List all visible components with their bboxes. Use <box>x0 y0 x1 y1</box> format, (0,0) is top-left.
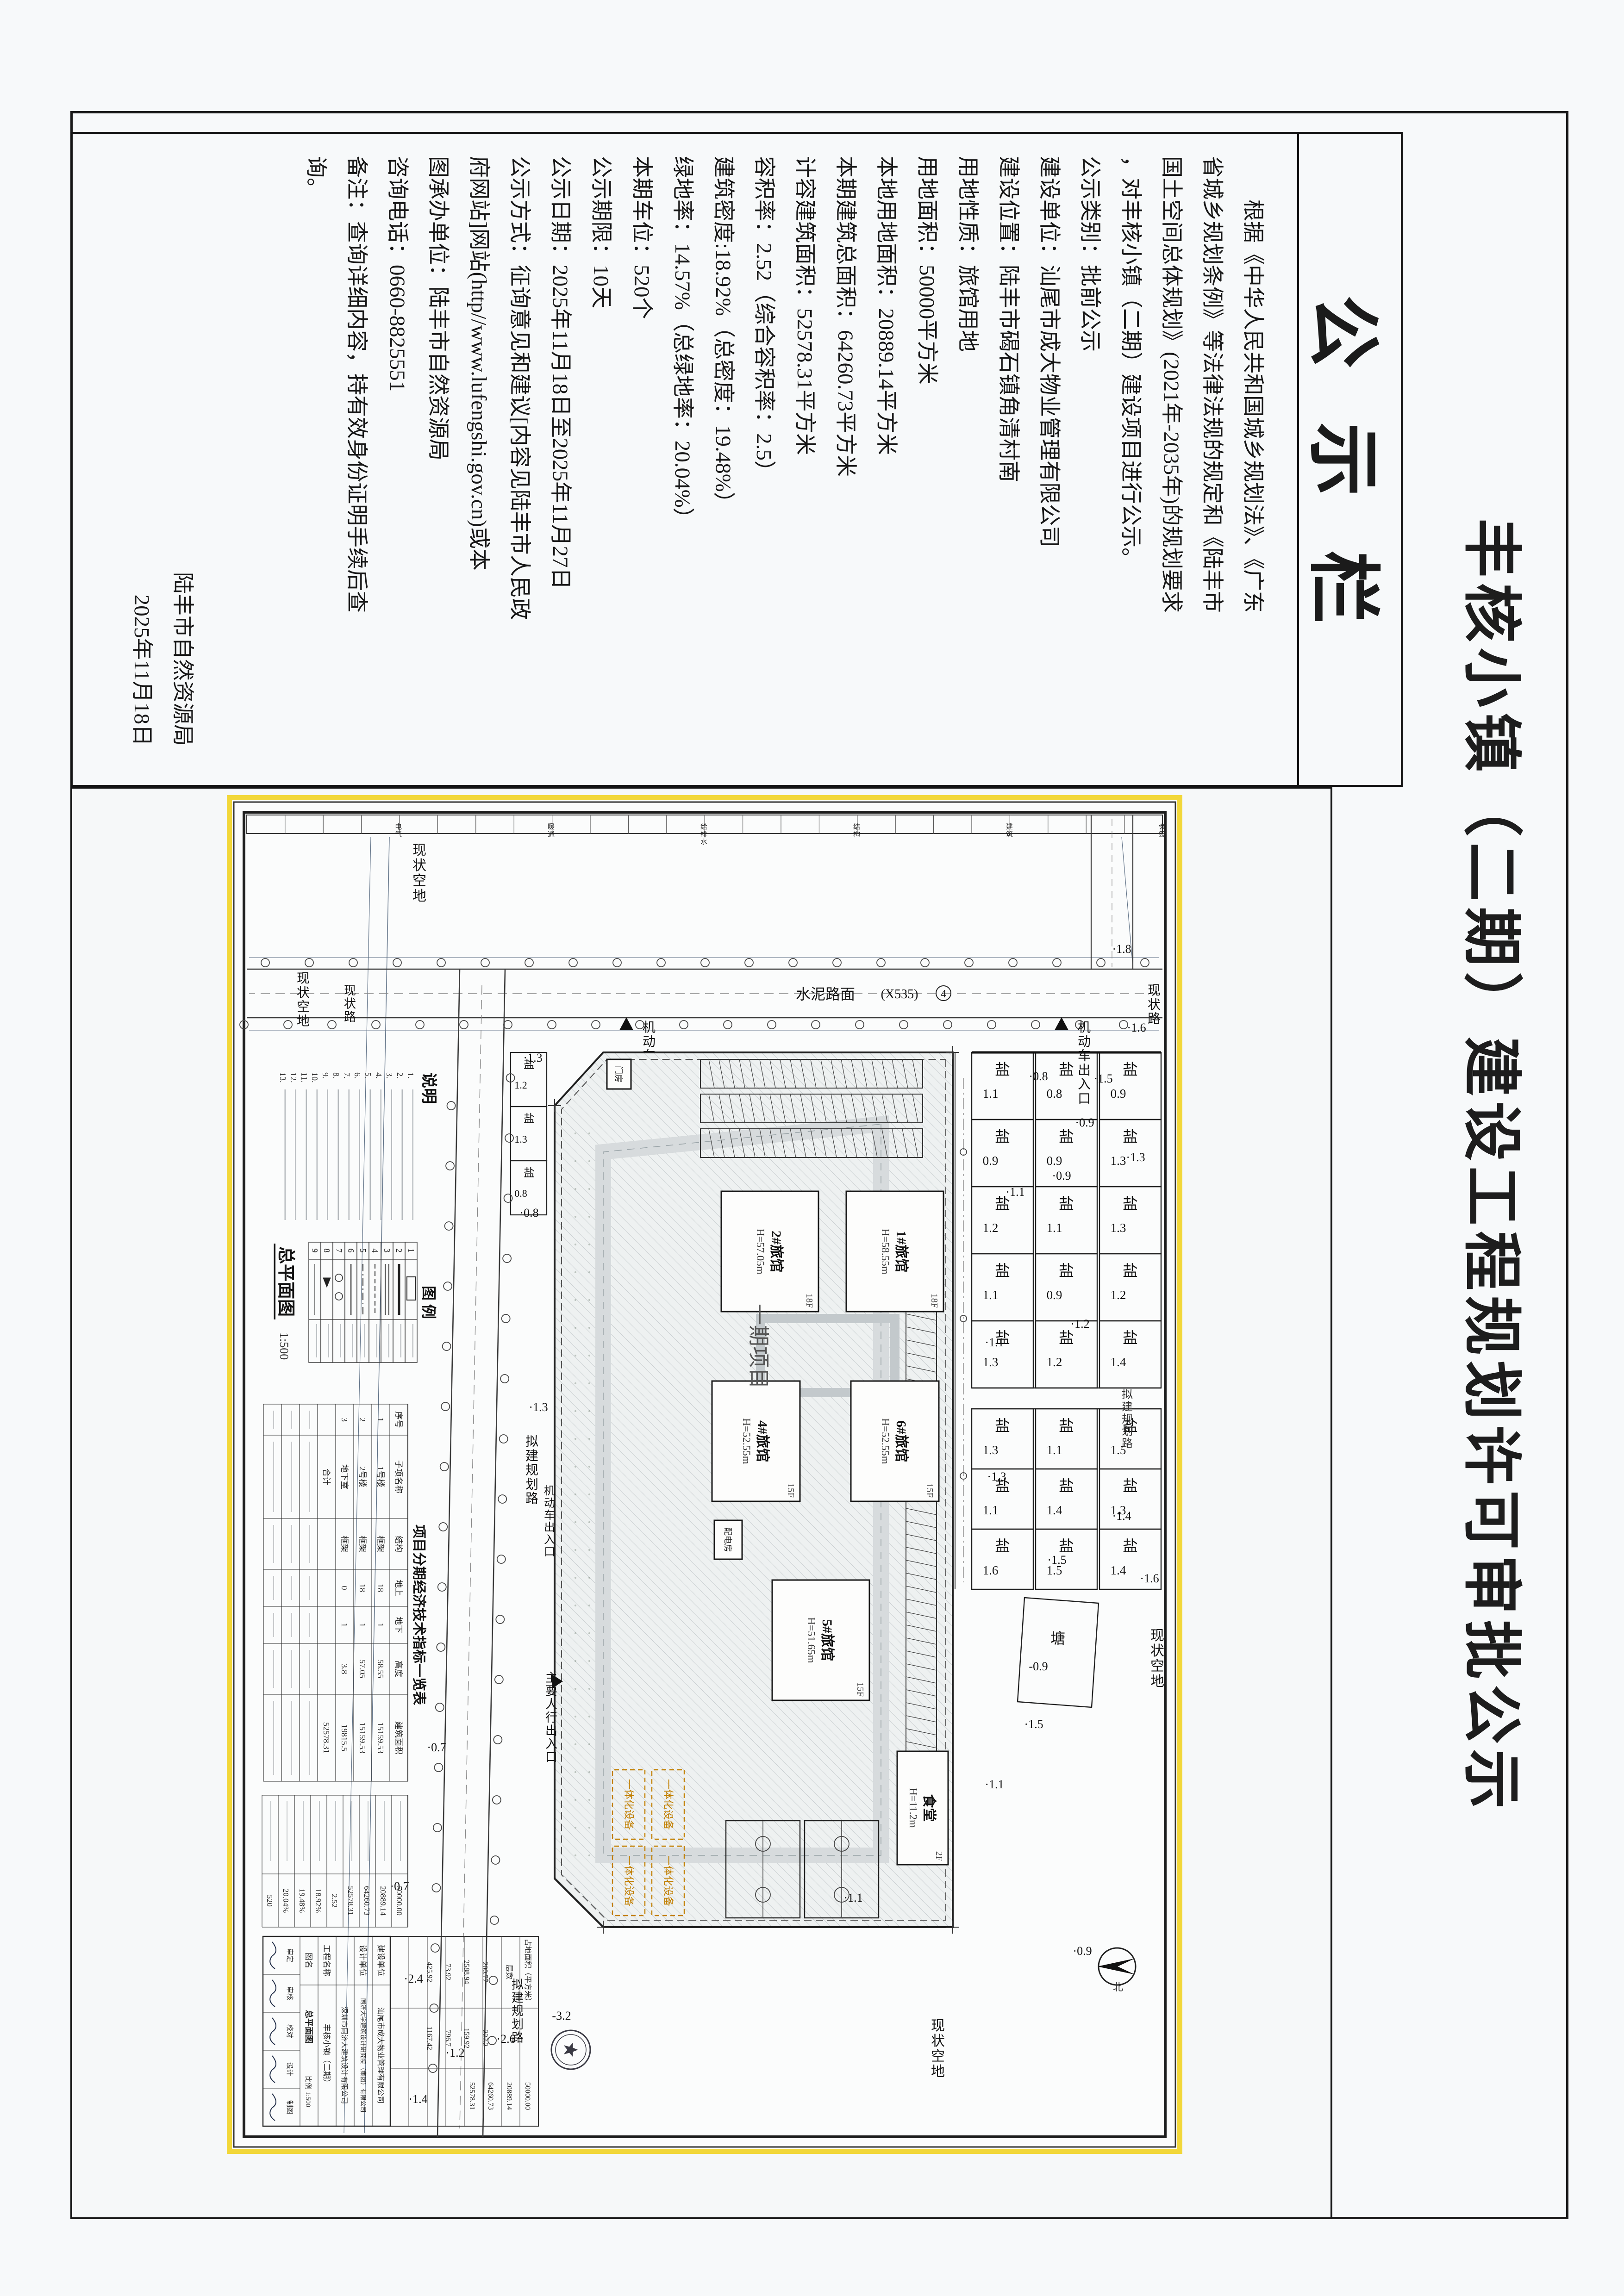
svg-text:盐: 盐 <box>1059 1478 1074 1495</box>
svg-text:1: 1 <box>340 1623 349 1627</box>
svg-text:0: 0 <box>340 1586 349 1590</box>
svg-text:一体化设备: 一体化设备 <box>662 1779 674 1830</box>
notice-line: 用地面积：50000平方米 <box>906 156 947 765</box>
svg-text:796.7: 796.7 <box>444 2030 452 2047</box>
notice-line: 公示方式：征询意见和建议[内容见陆丰市人民政 <box>499 156 540 765</box>
notice-line: 容积率：2.52（综合容积率：2.5） <box>743 156 784 765</box>
svg-text:深圳市同济人建筑设计有限公司: 深圳市同济人建筑设计有限公司 <box>340 2007 348 2104</box>
notice-line: 计容建筑面积：52578.31平方米 <box>784 156 825 765</box>
svg-text:1.: 1. <box>406 1072 415 1079</box>
svg-text:框架: 框架 <box>358 1536 367 1552</box>
svg-text:层数: 层数 <box>505 1965 513 1979</box>
svg-text:一体化设备: 一体化设备 <box>623 1855 635 1906</box>
svg-text:1号楼: 1号楼 <box>376 1467 385 1487</box>
svg-text:1.1: 1.1 <box>1047 1443 1062 1457</box>
svg-text:盐: 盐 <box>1059 1128 1074 1145</box>
svg-text:6#旅馆: 6#旅馆 <box>893 1420 909 1462</box>
svg-text:现状空地: 现状空地 <box>1150 1628 1164 1689</box>
svg-text:·1.3: ·1.3 <box>529 1400 548 1414</box>
svg-text:15F: 15F <box>786 1483 796 1498</box>
svg-text:现状路: 现状路 <box>344 984 356 1024</box>
svg-text:配电房: 配电房 <box>723 1527 732 1552</box>
svg-text:4#旅馆: 4#旅馆 <box>755 1420 770 1462</box>
notice-body: 根据《中华人民共和国城乡规划法》、《广东省城乡规划条例》等法律法规的规定和《陆丰… <box>121 134 1297 785</box>
svg-text:19.48%: 19.48% <box>298 1889 306 1913</box>
svg-text:18: 18 <box>358 1584 367 1592</box>
svg-text:58.55: 58.55 <box>376 1660 385 1679</box>
svg-text:1.1: 1.1 <box>983 1288 999 1302</box>
svg-text:1.3: 1.3 <box>1111 1154 1126 1168</box>
svg-text:给排水: 给排水 <box>700 823 707 846</box>
svg-text:·0.8: ·0.8 <box>1029 1070 1048 1083</box>
svg-text:·1.5: ·1.5 <box>1093 1072 1112 1085</box>
notice-line: 本地用地面积：20889.14平方米 <box>866 156 906 765</box>
svg-text:50000.00: 50000.00 <box>395 1886 404 1916</box>
svg-text:盐: 盐 <box>995 1538 1010 1555</box>
site-plan-photo: 会签建筑结构给排水暖通电气现状路4(X535)水泥路面现状路机动车出入口机动车出… <box>70 787 1332 2219</box>
svg-text:·0.8: ·0.8 <box>519 1206 538 1220</box>
svg-text:H=57.05m: H=57.05m <box>755 1228 766 1274</box>
svg-text:会签: 会签 <box>1159 823 1166 839</box>
svg-text:·1.2: ·1.2 <box>445 2046 464 2060</box>
svg-text:1.2: 1.2 <box>1111 1288 1126 1302</box>
svg-text:159.92: 159.92 <box>462 2028 470 2048</box>
signature-line: 陆丰市自然资源局 <box>162 156 203 765</box>
svg-text:2号楼: 2号楼 <box>358 1467 367 1487</box>
svg-text:·1.3: ·1.3 <box>523 1051 542 1064</box>
notice-line: 图承办单位：陆丰市自然资源局 <box>418 156 458 765</box>
svg-text:1: 1 <box>406 1249 416 1253</box>
notice-line: 本期车位：520个 <box>621 156 662 765</box>
notice-line: 建筑密度:18.92%（总密度：19.48%） <box>703 156 743 765</box>
svg-text:设计: 设计 <box>286 2062 294 2076</box>
svg-text:1.4: 1.4 <box>1047 1503 1062 1517</box>
board-header: 公示栏 <box>1297 134 1401 785</box>
notice-line: 公示期限：10天 <box>581 156 621 765</box>
notice-line: 建设单位：汕尾市成大物业管理有限公司 <box>1029 156 1069 765</box>
svg-text:盐: 盐 <box>995 1418 1010 1435</box>
svg-text:·1.5: ·1.5 <box>1047 1553 1066 1567</box>
svg-text:地上: 地上 <box>394 1580 403 1596</box>
svg-text:盐: 盐 <box>1123 1538 1138 1555</box>
svg-text:1.1: 1.1 <box>983 1087 999 1101</box>
svg-text:·0.9: ·0.9 <box>1052 1169 1071 1182</box>
svg-text:H=52.55m: H=52.55m <box>880 1418 891 1464</box>
svg-text:1:500: 1:500 <box>277 1332 291 1360</box>
svg-text:1.3: 1.3 <box>983 1443 999 1457</box>
svg-text:520: 520 <box>265 1895 274 1907</box>
svg-text:1: 1 <box>376 1418 385 1422</box>
svg-text:-3.2: -3.2 <box>552 2009 571 2022</box>
svg-text:一体化设备: 一体化设备 <box>662 1855 674 1906</box>
svg-text:框架: 框架 <box>340 1536 349 1552</box>
svg-text:拟建规划路: 拟建规划路 <box>1122 1388 1133 1450</box>
svg-text:盐: 盐 <box>1059 1418 1074 1435</box>
svg-text:塘: 塘 <box>1050 1630 1065 1647</box>
svg-text:框架: 框架 <box>376 1536 385 1552</box>
svg-text:·1.8: ·1.8 <box>1112 942 1131 956</box>
svg-text:1.2: 1.2 <box>983 1221 999 1235</box>
signature-line: 2025年11月18日 <box>121 156 162 765</box>
svg-text:6: 6 <box>346 1249 356 1253</box>
svg-text:拟建规划路: 拟建规划路 <box>525 1434 538 1506</box>
site-plan-drawing: 会签建筑结构给排水暖通电气现状路4(X535)水泥路面现状路机动车出入口机动车出… <box>232 800 1177 2149</box>
svg-text:15159.53: 15159.53 <box>376 1722 385 1754</box>
svg-text:1.2: 1.2 <box>514 1079 527 1091</box>
svg-text:1.4: 1.4 <box>1111 1563 1126 1577</box>
svg-text:1.3: 1.3 <box>1111 1221 1126 1235</box>
svg-text:一期项目: 一期项目 <box>747 1304 770 1389</box>
svg-text:222.2: 222.2 <box>481 2030 489 2047</box>
svg-text:项目分期经济技术指标一览表: 项目分期经济技术指标一览表 <box>411 1524 427 1705</box>
svg-text:·1.3: ·1.3 <box>1126 1151 1145 1164</box>
svg-text:0.9: 0.9 <box>983 1154 999 1168</box>
svg-text:盐: 盐 <box>1059 1538 1074 1555</box>
svg-text:0.8: 0.8 <box>514 1188 527 1199</box>
svg-text:425.92: 425.92 <box>425 1962 433 1982</box>
svg-text:盐: 盐 <box>1059 1330 1074 1347</box>
svg-text:1.6: 1.6 <box>983 1563 999 1577</box>
svg-text:·1.2: ·1.2 <box>1070 1317 1089 1331</box>
notice-board: 公示栏 根据《中华人民共和国城乡规划法》、《广东省城乡规划条例》等法律法规的规定… <box>70 132 1403 787</box>
svg-text:机动车出入口: 机动车出入口 <box>544 1485 555 1558</box>
svg-text:8.: 8. <box>331 1072 341 1079</box>
svg-text:·1.4: ·1.4 <box>1112 1509 1131 1523</box>
notice-line: 府网站]网站(http//www.lufengshi.gov.cn)或本 <box>458 156 499 765</box>
svg-text:盐: 盐 <box>1123 1128 1138 1145</box>
svg-text:64260.73: 64260.73 <box>362 1886 371 1916</box>
svg-text:高度: 高度 <box>394 1661 403 1677</box>
svg-text:盐: 盐 <box>1123 1195 1138 1213</box>
notice-line: 根据《中华人民共和国城乡规划法》、《广东 <box>1232 156 1273 765</box>
svg-text:2: 2 <box>394 1249 404 1253</box>
svg-text:总平面图: 总平面图 <box>304 2010 314 2043</box>
svg-text:18F: 18F <box>929 1294 939 1308</box>
svg-text:3.: 3. <box>385 1072 394 1079</box>
svg-text:·0.9: ·0.9 <box>1075 1116 1094 1129</box>
svg-text:·2.6: ·2.6 <box>496 2032 515 2046</box>
notice-line: 用地性质：旅馆用地 <box>947 156 988 765</box>
svg-text:1.4: 1.4 <box>1111 1355 1126 1369</box>
svg-text:盐: 盐 <box>524 1113 535 1125</box>
svg-text:64260.73: 64260.73 <box>487 2082 494 2110</box>
svg-text:·1.1: ·1.1 <box>1006 1185 1024 1199</box>
svg-text:地下室: 地下室 <box>340 1464 349 1489</box>
svg-text:建筑: 建筑 <box>1006 823 1013 839</box>
svg-text:5: 5 <box>358 1249 368 1253</box>
svg-text:52578.31: 52578.31 <box>322 1722 331 1754</box>
svg-text:0.9: 0.9 <box>1047 1288 1062 1302</box>
svg-text:5.: 5. <box>363 1072 373 1079</box>
svg-text:18.92%: 18.92% <box>314 1889 323 1913</box>
svg-text:73.92: 73.92 <box>444 1964 452 1980</box>
svg-text:暖通: 暖通 <box>548 823 555 839</box>
svg-text:9.: 9. <box>321 1072 330 1079</box>
svg-text:盐: 盐 <box>524 1167 535 1179</box>
svg-text:1.1: 1.1 <box>983 1503 999 1517</box>
svg-text:6.: 6. <box>353 1072 362 1079</box>
svg-text:15F: 15F <box>855 1682 865 1697</box>
svg-text:0.9: 0.9 <box>1111 1087 1126 1101</box>
svg-text:现状空地: 现状空地 <box>297 971 310 1028</box>
svg-text:盐: 盐 <box>1123 1061 1138 1078</box>
svg-text:总平面图: 总平面图 <box>276 1246 295 1317</box>
svg-text:地下: 地下 <box>394 1617 403 1633</box>
svg-text:H=11.2m: H=11.2m <box>907 1788 919 1828</box>
svg-text:2F: 2F <box>934 1851 944 1861</box>
svg-text:现状空地: 现状空地 <box>931 2018 945 2079</box>
svg-text:现状空地: 现状空地 <box>412 843 426 904</box>
svg-text:丰核小镇（二期）: 丰核小镇（二期） <box>322 2024 331 2087</box>
site-plan-sheet: 会签建筑结构给排水暖通电气现状路4(X535)水泥路面现状路机动车出入口机动车出… <box>227 795 1182 2154</box>
svg-text:盐: 盐 <box>1123 1478 1138 1495</box>
svg-text:图 例: 图 例 <box>420 1286 437 1319</box>
svg-text:审定: 审定 <box>286 1948 294 1962</box>
svg-text:13.: 13. <box>278 1072 287 1083</box>
svg-text:52578.31: 52578.31 <box>468 2082 476 2110</box>
svg-text:盐: 盐 <box>1059 1195 1074 1213</box>
svg-text:4: 4 <box>941 988 946 1000</box>
svg-text:1.3: 1.3 <box>514 1133 527 1145</box>
svg-text:19815.5: 19815.5 <box>340 1724 349 1752</box>
svg-text:·1.5: ·1.5 <box>1024 1717 1043 1731</box>
svg-text:7: 7 <box>334 1249 344 1253</box>
notice-line: 公示类别：批前公示 <box>1069 156 1110 765</box>
svg-text:电气: 电气 <box>395 823 402 839</box>
svg-text:·1.6: ·1.6 <box>1127 1021 1146 1034</box>
svg-text:2.: 2. <box>395 1072 405 1079</box>
svg-text:·1.3: ·1.3 <box>987 1470 1006 1483</box>
svg-text:比例 1:500: 比例 1:500 <box>304 2076 312 2107</box>
svg-text:子项名称: 子项名称 <box>394 1460 403 1493</box>
notice-line: ，对丰核小镇（二期）建设项目进行公示。 <box>1110 156 1151 765</box>
svg-text:合计: 合计 <box>322 1468 331 1485</box>
notice-line: 询。 <box>295 156 336 765</box>
svg-text:9: 9 <box>310 1249 319 1253</box>
document-landscape: 丰核小镇（二期）建设工程规划许可审批公示 公示栏 根据《中华人民共和国城乡规划法… <box>0 0 1624 2296</box>
svg-text:11.: 11. <box>300 1072 309 1083</box>
svg-text:52578.31: 52578.31 <box>346 1886 355 1916</box>
svg-text:占地面积（平方米）: 占地面积（平方米） <box>524 1939 532 2005</box>
svg-text:20889.14: 20889.14 <box>505 2082 513 2110</box>
svg-text:H=52.55m: H=52.55m <box>741 1418 752 1464</box>
svg-text:汕尾市成大物业管理有限公司: 汕尾市成大物业管理有限公司 <box>376 2007 385 2103</box>
notice-line: 咨询电话：0660-8825551 <box>377 156 418 765</box>
svg-text:4: 4 <box>370 1249 380 1253</box>
svg-text:12.: 12. <box>289 1072 298 1083</box>
svg-text:盐: 盐 <box>1059 1263 1074 1280</box>
svg-text:1: 1 <box>376 1623 385 1627</box>
svg-text:0.8: 0.8 <box>1047 1087 1062 1101</box>
svg-text:水泥路面: 水泥路面 <box>796 986 855 1002</box>
notice-line: 国土空间总体规划》(2021年-2035年)的规划要求 <box>1151 156 1192 765</box>
svg-text:15F: 15F <box>924 1483 935 1498</box>
svg-text:2588.94: 2588.94 <box>462 1960 470 1984</box>
svg-text:盐: 盐 <box>995 1128 1010 1145</box>
svg-text:18F: 18F <box>804 1294 814 1308</box>
svg-text:校对: 校对 <box>286 2024 294 2038</box>
notice-line: 备注：查询详细内容，持有效身份证明手续后查 <box>336 156 377 765</box>
svg-text:设计单位: 设计单位 <box>358 1945 367 1976</box>
svg-text:工程名称: 工程名称 <box>322 1945 331 1976</box>
svg-text:·1.1: ·1.1 <box>843 1891 862 1904</box>
svg-text:建设单位: 建设单位 <box>376 1945 385 1976</box>
svg-text:说明: 说明 <box>420 1072 437 1104</box>
notice-line: 公示日期：2025年11月18日至2025年11月27日 <box>540 156 581 765</box>
scanned-notice-page: { "page": { "heading": "丰核小镇（二期）建设工程规划许可… <box>0 0 1624 2296</box>
svg-text:0.9: 0.9 <box>1047 1154 1062 1168</box>
svg-text:1167.42: 1167.42 <box>425 2026 433 2050</box>
svg-text:(X535): (X535) <box>881 987 918 1002</box>
svg-text:3.8: 3.8 <box>340 1664 349 1674</box>
svg-text:7.: 7. <box>342 1072 351 1079</box>
svg-text:1.3: 1.3 <box>983 1355 999 1369</box>
svg-text:制图: 制图 <box>286 2100 294 2114</box>
svg-text:57.05: 57.05 <box>358 1660 367 1679</box>
svg-text:图名: 图名 <box>304 1953 313 1968</box>
svg-text:1#旅馆: 1#旅馆 <box>893 1231 909 1272</box>
svg-text:盐: 盐 <box>1123 1263 1138 1280</box>
svg-text:盐: 盐 <box>995 1263 1010 1280</box>
notice-line: 省城乡规划条例》等法律法规的规定和《陆丰市 <box>1192 156 1232 765</box>
svg-text:10.: 10. <box>310 1072 319 1083</box>
notice-line: 建设位置：陆丰市碣石镇角清村南 <box>988 156 1029 765</box>
svg-text:8: 8 <box>322 1249 331 1253</box>
svg-text:·1.4: ·1.4 <box>408 2092 427 2106</box>
svg-text:3: 3 <box>382 1249 392 1253</box>
svg-text:5#旅馆: 5#旅馆 <box>819 1619 835 1661</box>
svg-text:盐: 盐 <box>1123 1330 1138 1347</box>
svg-text:-0.9: -0.9 <box>1029 1660 1048 1673</box>
svg-text:审核: 审核 <box>286 1986 294 2000</box>
svg-text:3: 3 <box>340 1418 349 1422</box>
svg-text:2: 2 <box>358 1418 367 1422</box>
svg-text:门房: 门房 <box>614 1066 623 1083</box>
svg-text:结构: 结构 <box>394 1536 403 1552</box>
svg-text:4.: 4. <box>374 1072 383 1079</box>
svg-text:18: 18 <box>376 1584 385 1592</box>
board-title: 公示栏 <box>1297 295 1403 678</box>
svg-text:建筑面积: 建筑面积 <box>394 1721 403 1755</box>
svg-text:·1.6: ·1.6 <box>1140 1572 1159 1585</box>
svg-text:·0.7: ·0.7 <box>427 1741 446 1754</box>
svg-text:1.2: 1.2 <box>1047 1355 1062 1369</box>
notice-line: 绿地率：14.57%（总绿地率：20.04%） <box>662 156 703 765</box>
svg-text:北: 北 <box>1113 1981 1123 1993</box>
svg-text:1: 1 <box>358 1623 367 1627</box>
svg-text:机动车出入口: 机动车出入口 <box>1078 1020 1091 1106</box>
svg-text:·1.1: ·1.1 <box>985 1336 1004 1349</box>
svg-text:结构: 结构 <box>853 823 860 839</box>
svg-text:一体化设备: 一体化设备 <box>623 1779 635 1830</box>
svg-text:50000.00: 50000.00 <box>524 2082 531 2110</box>
svg-text:20889.14: 20889.14 <box>379 1886 387 1916</box>
notice-line: 本期建筑总面积：64260.73平方米 <box>825 156 866 765</box>
svg-text:H=58.55m: H=58.55m <box>880 1228 891 1274</box>
svg-text:食堂: 食堂 <box>921 1794 937 1822</box>
svg-text:1.1: 1.1 <box>1047 1221 1062 1235</box>
svg-text:同济大学建筑设计研究院（集团）有限公司: 同济大学建筑设计研究院（集团）有限公司 <box>360 1998 367 2112</box>
svg-text:2#旅馆: 2#旅馆 <box>768 1231 784 1272</box>
svg-text:·1.1: ·1.1 <box>985 1778 1004 1791</box>
svg-text:盐: 盐 <box>995 1061 1010 1078</box>
svg-text:序号: 序号 <box>394 1412 403 1428</box>
svg-text:2.52: 2.52 <box>330 1894 339 1908</box>
svg-text:盐: 盐 <box>1059 1061 1074 1078</box>
svg-text:20.04%: 20.04% <box>281 1889 290 1913</box>
svg-text:200.77: 200.77 <box>481 1962 489 1982</box>
svg-text:·0.9: ·0.9 <box>1073 1944 1092 1958</box>
svg-text:H=51.65m: H=51.65m <box>806 1617 817 1663</box>
svg-text:·2.4: ·2.4 <box>404 1972 423 1985</box>
svg-text:现状路: 现状路 <box>1148 983 1161 1027</box>
svg-text:15159.53: 15159.53 <box>358 1722 367 1754</box>
